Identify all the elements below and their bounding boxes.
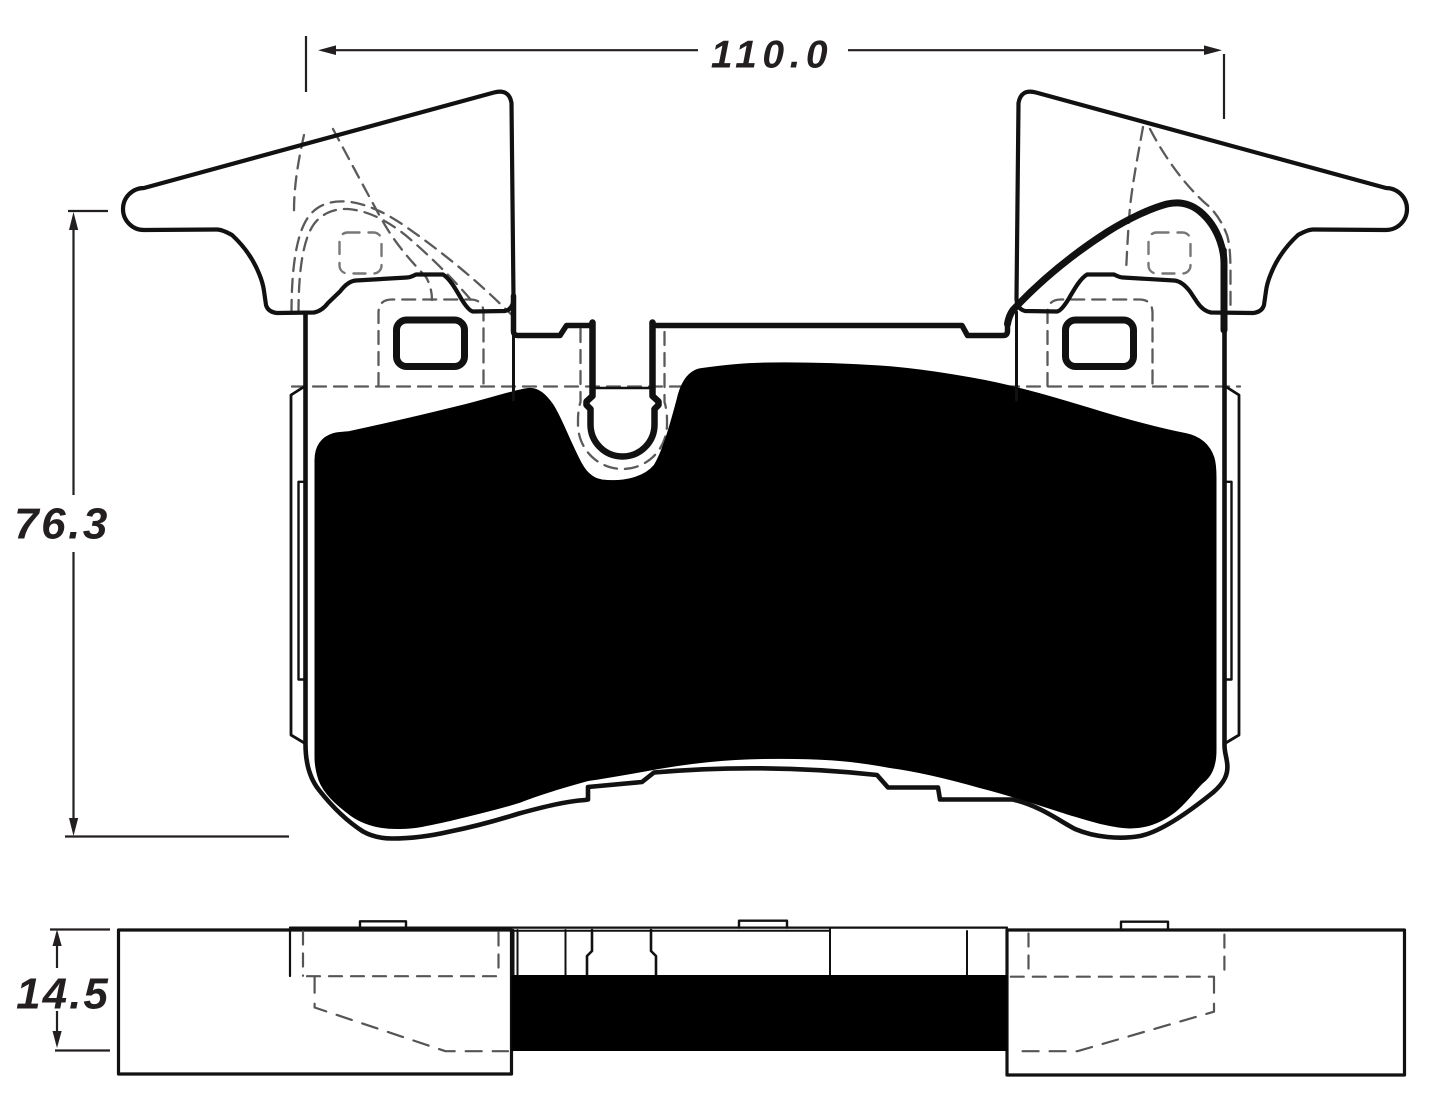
svg-text:76.3: 76.3 <box>14 500 110 549</box>
svg-text:14.5: 14.5 <box>16 970 110 1019</box>
svg-text:110.0: 110.0 <box>711 34 833 77</box>
